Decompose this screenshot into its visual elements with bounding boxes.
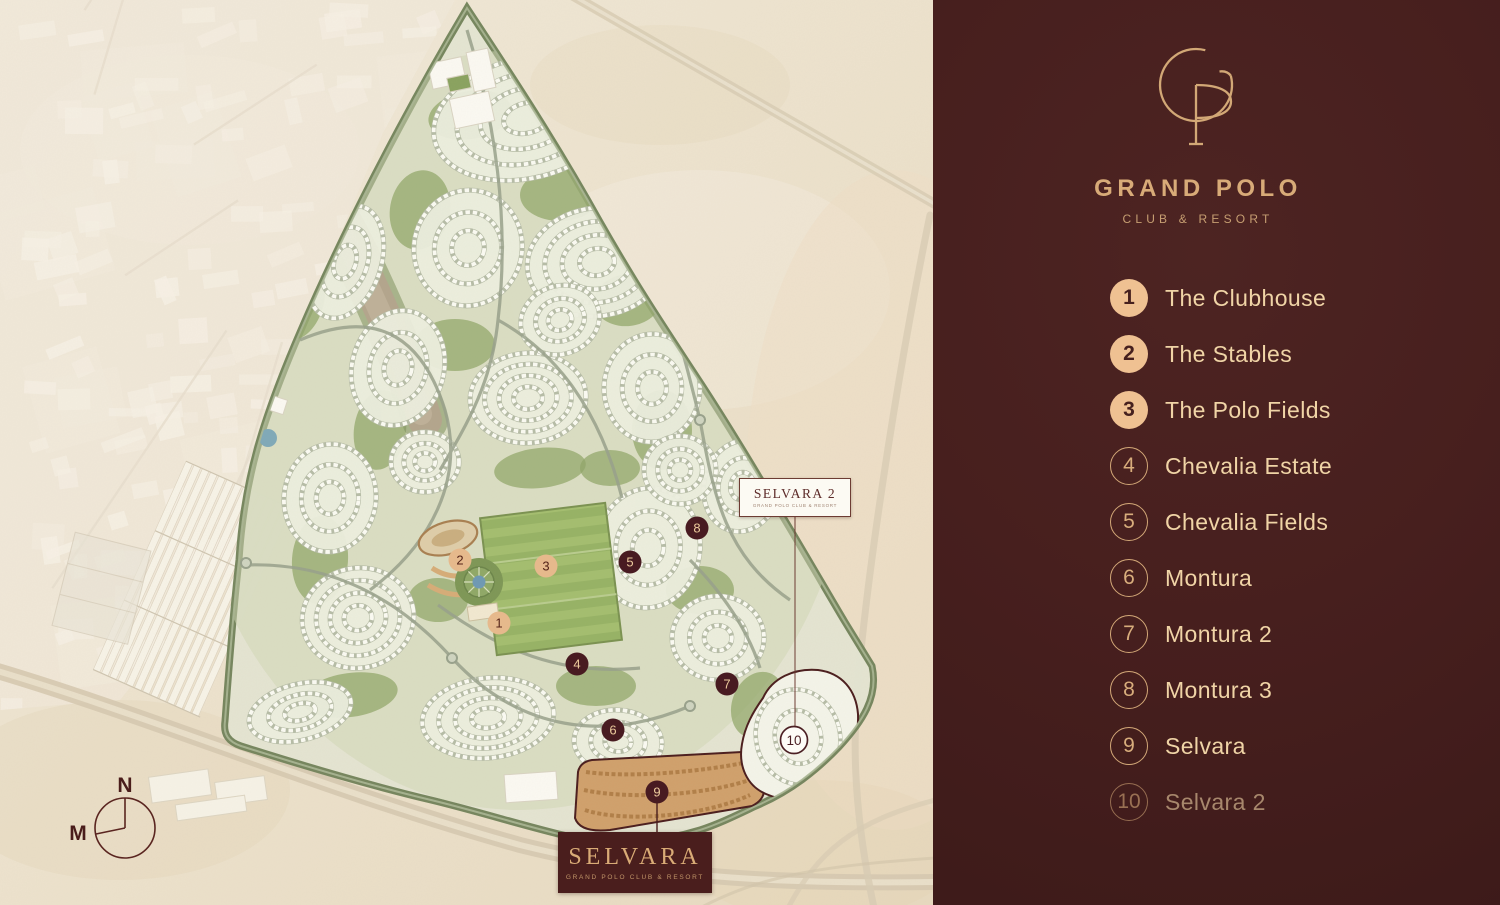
legend-item-label: The Polo Fields: [1165, 397, 1331, 424]
legend-item-selvara[interactable]: 9Selvara: [1110, 727, 1332, 765]
map-marker-4[interactable]: 4: [566, 653, 589, 676]
selvara2-label-subtitle: GRAND POLO CLUB & RESORT: [753, 503, 837, 508]
selvara-map-label: SELVARA GRAND POLO CLUB & RESORT: [558, 832, 712, 893]
legend-item-montura-2[interactable]: 7Montura 2: [1110, 615, 1332, 653]
svg-text:2: 2: [456, 553, 463, 568]
selvara2-label-title: SELVARA 2: [754, 487, 836, 501]
legend-item-label: Montura 3: [1165, 677, 1272, 704]
legend-item-chevalia-fields[interactable]: 5Chevalia Fields: [1110, 503, 1332, 541]
map-marker-8[interactable]: 8: [686, 517, 709, 540]
masterplan-svg: 12345678910: [0, 0, 933, 905]
legend-item-the-stables[interactable]: 2The Stables: [1110, 335, 1332, 373]
selvara-label-title: SELVARA: [568, 845, 701, 869]
brand-block: GRAND POLO CLUB & RESORT: [933, 40, 1463, 226]
legend-item-label: Montura: [1165, 565, 1252, 592]
map-legend: 1The Clubhouse2The Stables3The Polo Fiel…: [1110, 279, 1332, 821]
legend-item-label: The Stables: [1165, 341, 1292, 368]
svg-text:8: 8: [693, 521, 700, 536]
legend-item-label: Chevalia Fields: [1165, 509, 1328, 536]
legend-item-number: 3: [1110, 391, 1148, 429]
grand-polo-masterplan-page: 12345678910 SELVARA 2 GRAND POLO CLUB & …: [0, 0, 1500, 905]
map-marker-9[interactable]: 9: [646, 781, 669, 804]
map-marker-6[interactable]: 6: [602, 719, 625, 742]
legend-item-number: 5: [1110, 503, 1148, 541]
legend-item-number: 2: [1110, 335, 1148, 373]
legend-item-number: 6: [1110, 559, 1148, 597]
brand-title: GRAND POLO: [933, 175, 1463, 203]
legend-item-the-polo-fields[interactable]: 3The Polo Fields: [1110, 391, 1332, 429]
legend-item-label: Chevalia Estate: [1165, 453, 1332, 480]
legend-item-label: The Clubhouse: [1165, 285, 1326, 312]
map-marker-5[interactable]: 5: [619, 551, 642, 574]
svg-text:10: 10: [786, 733, 801, 748]
svg-text:1: 1: [495, 616, 502, 631]
legend-item-label: Montura 2: [1165, 621, 1272, 648]
sand-texture: [0, 0, 933, 905]
map-marker-1[interactable]: 1: [488, 612, 511, 635]
legend-item-number: 9: [1110, 727, 1148, 765]
legend-item-number: 4: [1110, 447, 1148, 485]
svg-text:4: 4: [573, 657, 580, 672]
selvara2-map-label: SELVARA 2 GRAND POLO CLUB & RESORT: [739, 478, 851, 517]
map-marker-10[interactable]: 10: [781, 727, 808, 754]
compass-makkah-label: M: [66, 822, 90, 846]
map-marker-3[interactable]: 3: [535, 555, 558, 578]
legend-item-number: 7: [1110, 615, 1148, 653]
svg-text:7: 7: [723, 677, 730, 692]
masterplan-map: 12345678910 SELVARA 2 GRAND POLO CLUB & …: [0, 0, 933, 905]
legend-item-selvara-2[interactable]: 10Selvara 2: [1110, 783, 1332, 821]
map-marker-2[interactable]: 2: [449, 549, 472, 572]
legend-item-number: 10: [1110, 783, 1148, 821]
legend-item-label: Selvara 2: [1165, 789, 1266, 816]
legend-item-number: 8: [1110, 671, 1148, 709]
legend-item-montura-3[interactable]: 8Montura 3: [1110, 671, 1332, 709]
legend-item-chevalia-estate[interactable]: 4Chevalia Estate: [1110, 447, 1332, 485]
legend-sidebar: GRAND POLO CLUB & RESORT 1The Clubhouse2…: [933, 0, 1500, 905]
svg-text:5: 5: [626, 555, 633, 570]
gp-monogram-logo: [1146, 40, 1250, 152]
svg-text:3: 3: [542, 559, 549, 574]
svg-text:9: 9: [653, 785, 660, 800]
compass-north-label: N: [113, 774, 137, 798]
legend-item-number: 1: [1110, 279, 1148, 317]
legend-item-label: Selvara: [1165, 733, 1246, 760]
map-marker-7[interactable]: 7: [716, 673, 739, 696]
legend-item-montura[interactable]: 6Montura: [1110, 559, 1332, 597]
svg-text:6: 6: [609, 723, 616, 738]
legend-item-the-clubhouse[interactable]: 1The Clubhouse: [1110, 279, 1332, 317]
selvara-label-subtitle: GRAND POLO CLUB & RESORT: [566, 874, 704, 881]
brand-subtitle: CLUB & RESORT: [933, 212, 1463, 226]
